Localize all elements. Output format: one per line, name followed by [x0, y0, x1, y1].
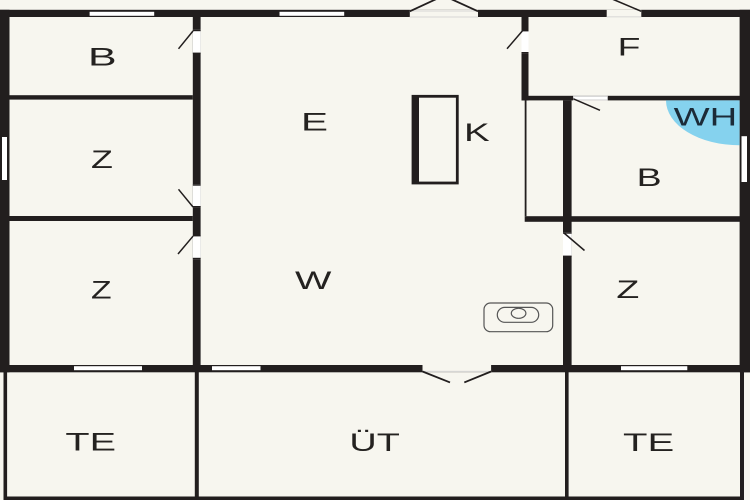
svg-text:TE: TE	[623, 430, 674, 457]
svg-text:B: B	[637, 165, 662, 192]
svg-text:W: W	[295, 268, 333, 295]
svg-text:WH: WH	[674, 105, 738, 132]
svg-text:K: K	[464, 120, 491, 147]
svg-text:ÜT: ÜT	[349, 430, 400, 457]
svg-text:E: E	[301, 110, 328, 137]
svg-text:B: B	[88, 44, 117, 71]
svg-text:F: F	[618, 34, 641, 61]
svg-text:Z: Z	[616, 277, 639, 304]
svg-text:TE: TE	[65, 429, 116, 456]
svg-text:Z: Z	[91, 147, 113, 174]
svg-text:Z: Z	[91, 278, 112, 305]
